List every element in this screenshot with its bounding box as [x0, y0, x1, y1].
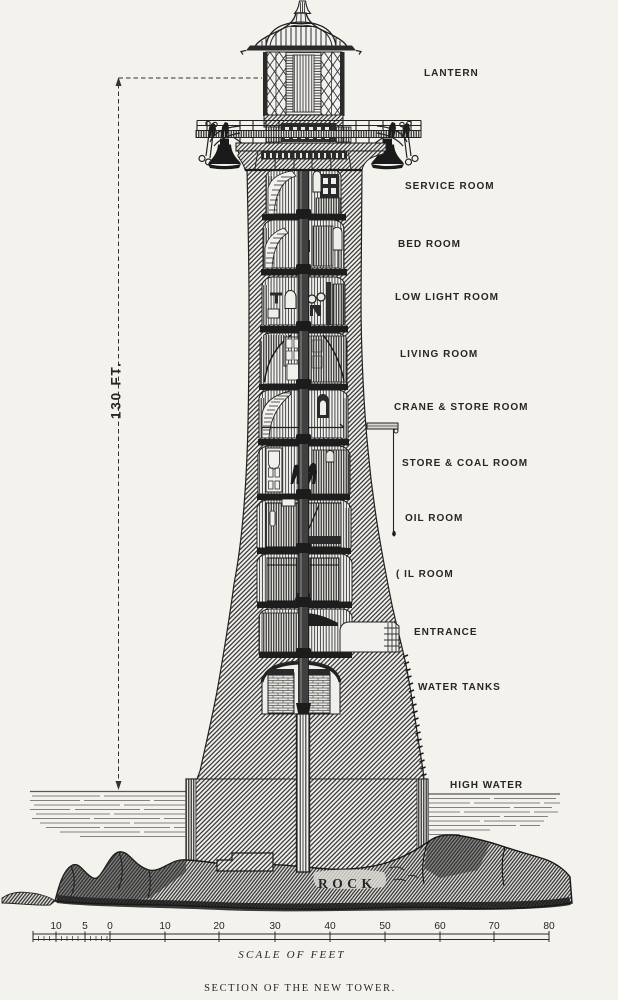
svg-text:30: 30 [269, 921, 281, 932]
svg-text:10: 10 [50, 921, 62, 932]
svg-text:50: 50 [379, 921, 391, 932]
svg-text:40: 40 [324, 921, 336, 932]
svg-text:ENTRANCE: ENTRANCE [414, 627, 478, 638]
svg-text:OIL ROOM: OIL ROOM [405, 513, 463, 524]
svg-text:( IL ROOM: ( IL ROOM [396, 569, 454, 580]
svg-text:0: 0 [107, 921, 113, 932]
svg-text:SERVICE ROOM: SERVICE ROOM [405, 181, 495, 192]
svg-text:20: 20 [213, 921, 225, 932]
svg-text:HIGH WATER: HIGH WATER [450, 780, 523, 791]
svg-text:10: 10 [159, 921, 171, 932]
svg-text:SCALE OF FEET: SCALE OF FEET [238, 949, 345, 961]
svg-text:WATER TANKS: WATER TANKS [418, 682, 501, 693]
svg-text:70: 70 [488, 921, 500, 932]
svg-text:60: 60 [434, 921, 446, 932]
svg-text:LIVING ROOM: LIVING ROOM [400, 349, 478, 360]
svg-text:80: 80 [543, 921, 555, 932]
svg-text:ROCK: ROCK [318, 876, 377, 891]
svg-text:STORE & COAL ROOM: STORE & COAL ROOM [402, 458, 528, 469]
svg-text:LANTERN: LANTERN [424, 68, 479, 79]
svg-text:130 FT.: 130 FT. [109, 361, 124, 419]
svg-text:SECTION OF THE NEW TOWER.: SECTION OF THE NEW TOWER. [204, 983, 396, 994]
svg-text:5: 5 [82, 921, 88, 932]
svg-text:BED ROOM: BED ROOM [398, 239, 461, 250]
svg-text:CRANE & STORE ROOM: CRANE & STORE ROOM [394, 402, 529, 413]
svg-text:LOW LIGHT ROOM: LOW LIGHT ROOM [395, 292, 499, 303]
